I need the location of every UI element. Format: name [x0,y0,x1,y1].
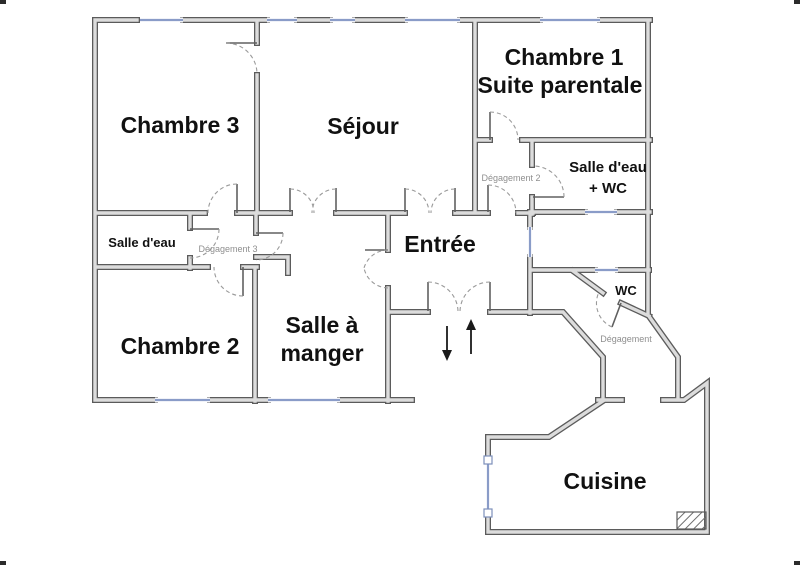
entry-direction-arrows [442,319,476,361]
room-label-salle-eau-wc-2: + WC [589,180,627,197]
corner-marks [0,0,800,565]
room-label-entree: Entrée [404,231,476,257]
room-label-chambre-2: Chambre 2 [121,333,240,359]
room-label-wc: WC [615,283,637,298]
room-label-chambre-3: Chambre 3 [121,112,240,138]
room-label-degagement-2: Dégagement 2 [481,173,540,183]
floor-plan-page: Chambre 3 Séjour Chambre 1 Suite parenta… [0,0,800,565]
duct-hatch-box [677,512,706,529]
room-label-chambre-1: Chambre 1 [505,44,624,70]
entry-arrow-down [442,326,452,361]
room-label-sejour: Séjour [327,113,399,139]
floor-plan: Chambre 3 Séjour Chambre 1 Suite parenta… [0,0,800,565]
room-label-suite-parentale: Suite parentale [478,72,643,98]
entry-arrow-up [466,319,476,354]
room-label-salle-eau: Salle d'eau [108,235,175,250]
room-label-degagement: Dégagement [600,334,652,344]
room-label-salle-eau-wc-1: Salle d'eau [569,159,647,176]
room-label-salle-a-manger-1: Salle à [286,312,359,338]
room-label-degagement-3: Dégagement 3 [198,244,257,254]
room-label-salle-a-manger-2: manger [280,340,363,366]
room-label-cuisine: Cuisine [563,468,646,494]
